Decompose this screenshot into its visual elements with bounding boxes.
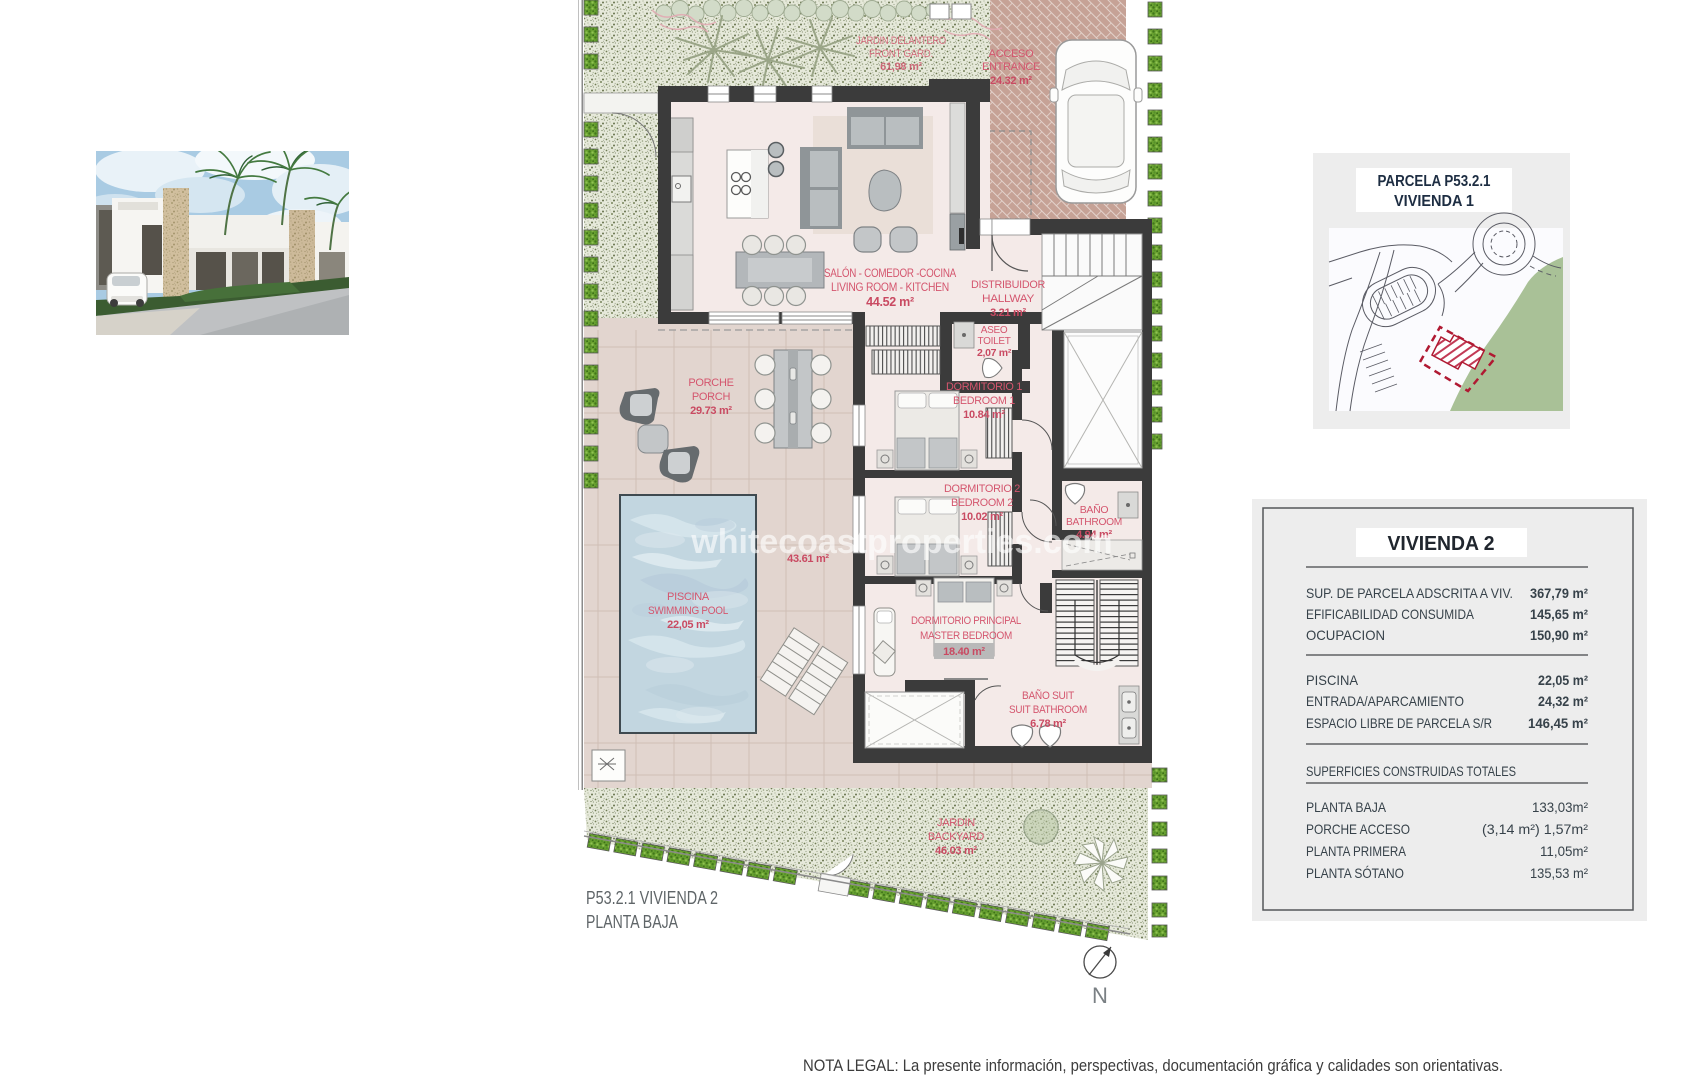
svg-text:367,79 m²: 367,79 m²: [1530, 585, 1588, 601]
svg-text:DORMITORIO PRINCIPAL: DORMITORIO PRINCIPAL: [911, 615, 1021, 627]
svg-text:22,05 m²: 22,05 m²: [1538, 672, 1588, 688]
svg-text:SUP. DE PARCELA ADSCRITA A VIV: SUP. DE PARCELA ADSCRITA A VIV.: [1306, 585, 1513, 601]
svg-text:3.21 m²: 3.21 m²: [990, 307, 1026, 319]
svg-text:61,98 m²: 61,98 m²: [880, 61, 922, 73]
svg-text:PLANTA BAJA: PLANTA BAJA: [1306, 799, 1387, 815]
svg-text:10.02 m²: 10.02 m²: [961, 511, 1003, 523]
svg-text:24.32 m²: 24.32 m²: [990, 75, 1032, 87]
svg-text:145,65 m²: 145,65 m²: [1530, 606, 1588, 622]
svg-text:(3,14 m²) 1,57m²: (3,14 m²) 1,57m²: [1482, 821, 1588, 837]
svg-text:HALLWAY: HALLWAY: [982, 293, 1035, 305]
svg-text:JARDIN: JARDIN: [937, 817, 975, 829]
svg-text:PISCINA: PISCINA: [667, 591, 710, 603]
svg-text:PORCH: PORCH: [692, 391, 731, 403]
svg-text:DORMITORIO 1: DORMITORIO 1: [946, 381, 1022, 393]
svg-text:22,05 m²: 22,05 m²: [667, 619, 709, 631]
svg-text:ASEO: ASEO: [981, 325, 1008, 336]
svg-text:ESPACIO LIBRE DE PARCELA S/R: ESPACIO LIBRE DE PARCELA S/R: [1306, 715, 1492, 731]
svg-text:10.84 m²: 10.84 m²: [963, 409, 1005, 421]
svg-text:PORCHE: PORCHE: [688, 377, 733, 389]
svg-text:135,53 m²: 135,53 m²: [1530, 865, 1588, 881]
svg-text:N: N: [1092, 983, 1108, 1008]
svg-text:BAÑO: BAÑO: [1080, 503, 1109, 516]
svg-text:18.40 m²: 18.40 m²: [943, 646, 985, 658]
svg-text:PISCINA: PISCINA: [1306, 672, 1359, 688]
svg-text:BEDROOM 1: BEDROOM 1: [953, 395, 1015, 407]
svg-text:BEDROOM 2: BEDROOM 2: [951, 497, 1013, 509]
svg-text:EFIFICABILIDAD CONSUMIDA: EFIFICABILIDAD CONSUMIDA: [1306, 606, 1475, 622]
svg-text:29.73 m²: 29.73 m²: [690, 405, 732, 417]
svg-text:SALÓN - COMEDOR -COCINA: SALÓN - COMEDOR -COCINA: [824, 265, 956, 280]
svg-text:ENTRANCE: ENTRANCE: [982, 61, 1040, 73]
svg-text:VIVIENDA 1: VIVIENDA 1: [1394, 193, 1474, 210]
svg-text:NOTA LEGAL: La presente inform: NOTA LEGAL: La presente información, per…: [803, 1057, 1503, 1075]
svg-text:SUPERFICIES CONSTRUIDAS TOTALE: SUPERFICIES CONSTRUIDAS TOTALES: [1306, 763, 1516, 779]
svg-text:BAÑO SUIT: BAÑO SUIT: [1022, 689, 1075, 702]
svg-text:PLANTA PRIMERA: PLANTA PRIMERA: [1306, 843, 1407, 859]
svg-text:FRONT GARD.: FRONT GARD.: [869, 48, 933, 60]
svg-text:PLANTA SÓTANO: PLANTA SÓTANO: [1306, 865, 1404, 881]
svg-text:SWIMMING POOL: SWIMMING POOL: [648, 605, 728, 617]
svg-text:TOILET: TOILET: [977, 336, 1010, 347]
svg-text:2,07 m²: 2,07 m²: [977, 347, 1012, 359]
svg-text:44.52 m²: 44.52 m²: [866, 295, 914, 309]
svg-text:PARCELA P53.2.1: PARCELA P53.2.1: [1378, 173, 1491, 190]
svg-text:MASTER BEDROOM: MASTER BEDROOM: [920, 630, 1012, 642]
svg-text:46.03 m²: 46.03 m²: [935, 845, 977, 857]
svg-text:133,03m²: 133,03m²: [1532, 799, 1588, 815]
svg-text:VIVIENDA 2: VIVIENDA 2: [1388, 533, 1495, 555]
svg-text:150,90 m²: 150,90 m²: [1530, 627, 1588, 643]
svg-text:DISTRIBUIDOR: DISTRIBUIDOR: [971, 279, 1045, 291]
svg-text:BACKYARD: BACKYARD: [928, 831, 984, 843]
svg-text:SUIT BATHROOM: SUIT BATHROOM: [1009, 704, 1087, 716]
svg-text:ACCESO: ACCESO: [989, 48, 1034, 60]
svg-text:24,32 m²: 24,32 m²: [1538, 693, 1588, 709]
svg-text:DORMITORIO 2: DORMITORIO 2: [944, 483, 1020, 495]
svg-text:whitecoastproperties.com: whitecoastproperties.com: [690, 523, 1112, 561]
svg-text:PLANTA BAJA: PLANTA BAJA: [586, 912, 678, 932]
svg-text:6.78 m²: 6.78 m²: [1030, 718, 1066, 730]
svg-text:JARDIN DELANTERO: JARDIN DELANTERO: [856, 35, 947, 47]
svg-text:11,05m²: 11,05m²: [1540, 843, 1588, 859]
svg-text:OCUPACION: OCUPACION: [1306, 627, 1385, 643]
svg-text:PORCHE ACCESO: PORCHE ACCESO: [1306, 821, 1410, 837]
svg-text:P53.2.1 VIVIENDA 2: P53.2.1 VIVIENDA 2: [586, 888, 718, 908]
svg-text:146,45 m²: 146,45 m²: [1528, 715, 1588, 731]
svg-text:ENTRADA/APARCAMIENTO: ENTRADA/APARCAMIENTO: [1306, 693, 1464, 709]
svg-text:LIVING ROOM - KITCHEN: LIVING ROOM - KITCHEN: [831, 280, 949, 294]
